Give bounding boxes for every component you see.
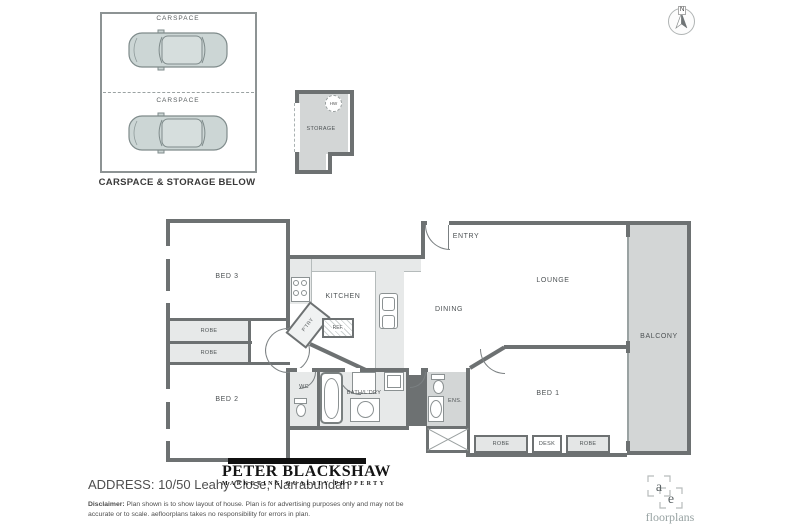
- storage-wall-right: [350, 90, 354, 156]
- fridge-label: REF.: [332, 325, 345, 331]
- balcony-mullion-3: [626, 441, 630, 451]
- robe-unit: ROBE: [566, 435, 610, 453]
- burner-icon: [301, 280, 307, 286]
- burner-icon: [301, 290, 307, 296]
- storage-opening: [294, 103, 300, 152]
- storage-wall-top: [295, 90, 354, 94]
- pantry-label: P'TRY: [301, 317, 315, 333]
- storage-floor-lower: [299, 152, 326, 172]
- entry-door-arc: [425, 225, 450, 250]
- wall-lounge-bed1: [504, 345, 627, 349]
- agency-name: PETER BLACKSHAW: [222, 464, 372, 481]
- window-bed3-1: [166, 246, 170, 259]
- car-icon: [128, 29, 228, 71]
- fridge-unit: REF.: [322, 318, 354, 338]
- compass-n-label: N: [678, 6, 686, 15]
- carspace-2-label: CARSPACE: [156, 97, 199, 104]
- agency-logo: PETER BLACKSHAW MARKETING QUALITY PROPER…: [222, 458, 372, 487]
- window-bed2-1: [166, 389, 170, 402]
- wall-robe-stub2: [248, 344, 251, 362]
- burner-icon: [293, 280, 299, 286]
- dining-label: DINING: [435, 306, 463, 313]
- ens-toilet-bowl: [433, 380, 444, 394]
- lounge-label: LOUNGE: [536, 277, 569, 284]
- balcony-glazing: [627, 229, 629, 451]
- ens-shower: [426, 426, 470, 453]
- carspace-caption: CARSPACE & STORAGE BELOW: [99, 177, 256, 188]
- laundry-trough-inner: [387, 375, 401, 388]
- bath-label: BATH/L'DRY: [347, 390, 381, 396]
- balcony-mullion-1: [626, 225, 630, 237]
- balcony-label: BALCONY: [640, 333, 678, 340]
- bath-basin: [357, 401, 374, 418]
- bed1-door-arc: [480, 349, 505, 374]
- logo-letter-e: e: [668, 492, 674, 507]
- kitchen-label: KITCHEN: [326, 293, 361, 300]
- hall-door-arc: [265, 350, 288, 373]
- storage-wall-bottom: [295, 170, 332, 174]
- robe-label: ROBE: [580, 441, 597, 447]
- car-icon: [128, 112, 228, 154]
- ens-label: ENS.: [448, 398, 462, 404]
- robe-label: ROBE: [201, 328, 218, 334]
- desk-label: DESK: [539, 441, 555, 447]
- entry-label: ENTRY: [453, 233, 480, 240]
- wc-label: WC: [299, 384, 309, 390]
- disclaimer-label: Disclaimer:: [88, 501, 125, 508]
- wc-toilet-bowl: [296, 404, 306, 417]
- desk-unit: DESK: [532, 435, 562, 453]
- hw-label: HW: [330, 101, 338, 106]
- burner-icon: [293, 290, 299, 296]
- robe-unit: ROBE: [474, 435, 528, 453]
- entry-door-leaf: [448, 225, 449, 249]
- robe-label: ROBE: [201, 350, 218, 356]
- logo-letter-a: a: [656, 480, 663, 495]
- robe-label: ROBE: [493, 441, 510, 447]
- window-bed3-2: [166, 291, 170, 303]
- carspace-1-label: CARSPACE: [156, 15, 199, 22]
- bathtub-inner: [324, 378, 339, 419]
- bed2-label: BED 2: [215, 396, 238, 403]
- wall-balcony-right: [687, 221, 691, 455]
- logo-floorplans-text: floorplans: [646, 510, 695, 524]
- ens-basin: [430, 400, 442, 418]
- wall-bath-bottom: [287, 426, 409, 430]
- wall-bed1-bottom: [470, 453, 627, 457]
- storage-label: STORAGE: [307, 126, 336, 132]
- agency-tagline: MARKETING QUALITY PROPERTY: [222, 481, 372, 487]
- sink-bowl: [382, 315, 395, 329]
- wall-bed3-top: [166, 219, 290, 223]
- floorplan-page: CARSPACE CARSPACE CARSPACE & STORAGE BEL…: [0, 0, 790, 527]
- wall-balcony-bottom: [627, 451, 691, 455]
- floorplans-logo: a e floorplans: [634, 474, 706, 524]
- sink-bowl: [382, 297, 395, 311]
- bed3-label: BED 3: [215, 273, 238, 280]
- bed1-label: BED 1: [536, 390, 559, 397]
- hall-door-arc: [265, 328, 288, 351]
- wall-robe-stub1: [248, 321, 251, 341]
- disclaimer-text: Disclaimer: Plan shown is to show layout…: [88, 500, 406, 519]
- hot-water-unit: HW: [325, 95, 342, 112]
- disclaimer-body: Plan shown is to show layout of house. P…: [88, 501, 404, 518]
- window-bed2-2: [166, 429, 170, 441]
- carspace-divider: [103, 92, 254, 93]
